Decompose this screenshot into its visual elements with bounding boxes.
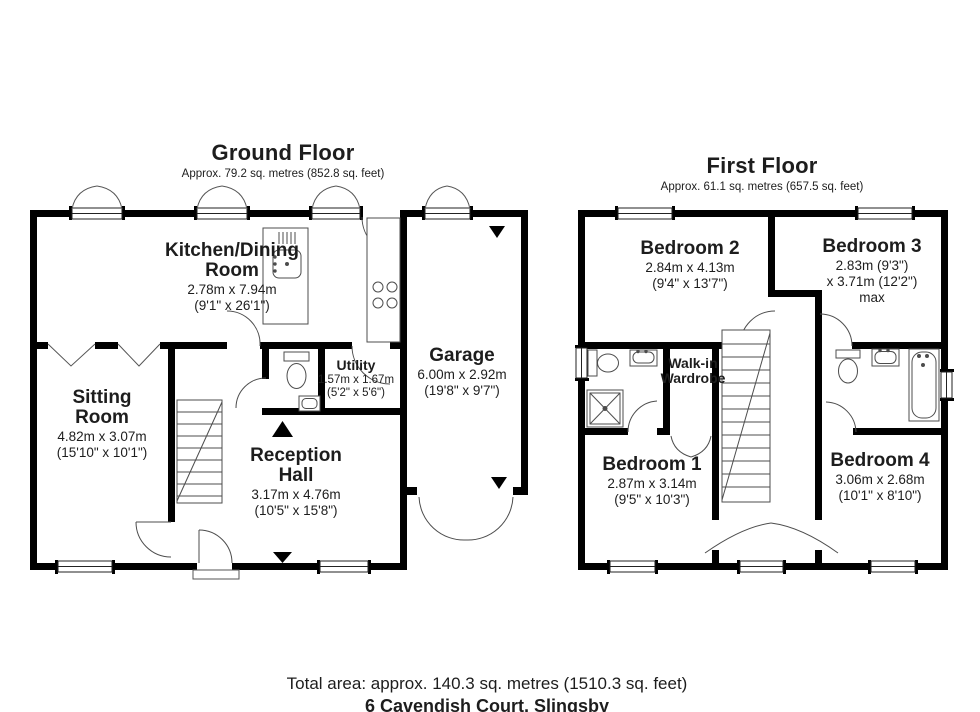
stairs-icon — [722, 330, 770, 502]
floorplan-page: Ground Floor Approx. 79.2 sq. metres (85… — [0, 0, 980, 712]
room-label-wardrobe: Walk-in Wardrobe — [661, 356, 726, 386]
toilet-icon — [836, 350, 860, 383]
floor-title-text: First Floor — [661, 153, 864, 179]
first-floor-title: First Floor Approx. 61.1 sq. metres (657… — [661, 153, 864, 193]
room-label-bedroom2: Bedroom 2 2.84m x 4.13m (9'4" x 13'7") — [640, 239, 739, 292]
room-label-utility: Utility 1.57m x 1.67m (5'2" x 5'6") — [318, 358, 394, 401]
casement-arcs — [72, 186, 470, 209]
stairs-icon — [177, 400, 222, 503]
room-label-sitting: Sitting Room 4.82m x 3.07m (15'10" x 10'… — [57, 388, 148, 461]
floor-title-text: Ground Floor — [182, 140, 385, 166]
total-area-text: Total area: approx. 140.3 sq. metres (15… — [287, 674, 688, 694]
room-label-garage: Garage 6.00m x 2.92m (19'8" x 9'7") — [417, 346, 506, 399]
sink-icon — [630, 350, 657, 366]
sink-icon — [872, 349, 899, 366]
sink-icon — [299, 396, 320, 411]
floor-subtitle-text: Approx. 61.1 sq. metres (657.5 sq. feet) — [661, 181, 864, 193]
floor-subtitle-text: Approx. 79.2 sq. metres (852.8 sq. feet) — [182, 168, 385, 180]
porch-step — [193, 570, 239, 579]
toilet-icon — [284, 352, 309, 389]
room-label-kitchen: Kitchen/Dining Room 2.78m x 7.94m (9'1" … — [165, 241, 299, 314]
toilet-icon — [588, 350, 619, 376]
shower-icon — [587, 390, 623, 427]
ground-floor-title: Ground Floor Approx. 79.2 sq. metres (85… — [182, 140, 385, 180]
hob-icon — [367, 218, 400, 342]
address-text: 6 Cavendish Court, Slingsby — [287, 696, 688, 712]
room-label-reception: Reception Hall 3.17m x 4.76m (10'5" x 15… — [250, 446, 342, 519]
bathtub-icon — [909, 349, 939, 421]
room-label-bedroom1: Bedroom 1 2.87m x 3.14m (9'5" x 10'3") — [602, 455, 701, 508]
room-label-bedroom3: Bedroom 3 2.83m (9'3") x 3.71m (12'2") m… — [818, 237, 926, 306]
room-label-bedroom4: Bedroom 4 3.06m x 2.68m (10'1" x 8'10") — [830, 451, 929, 504]
footer: Total area: approx. 140.3 sq. metres (15… — [287, 674, 688, 712]
